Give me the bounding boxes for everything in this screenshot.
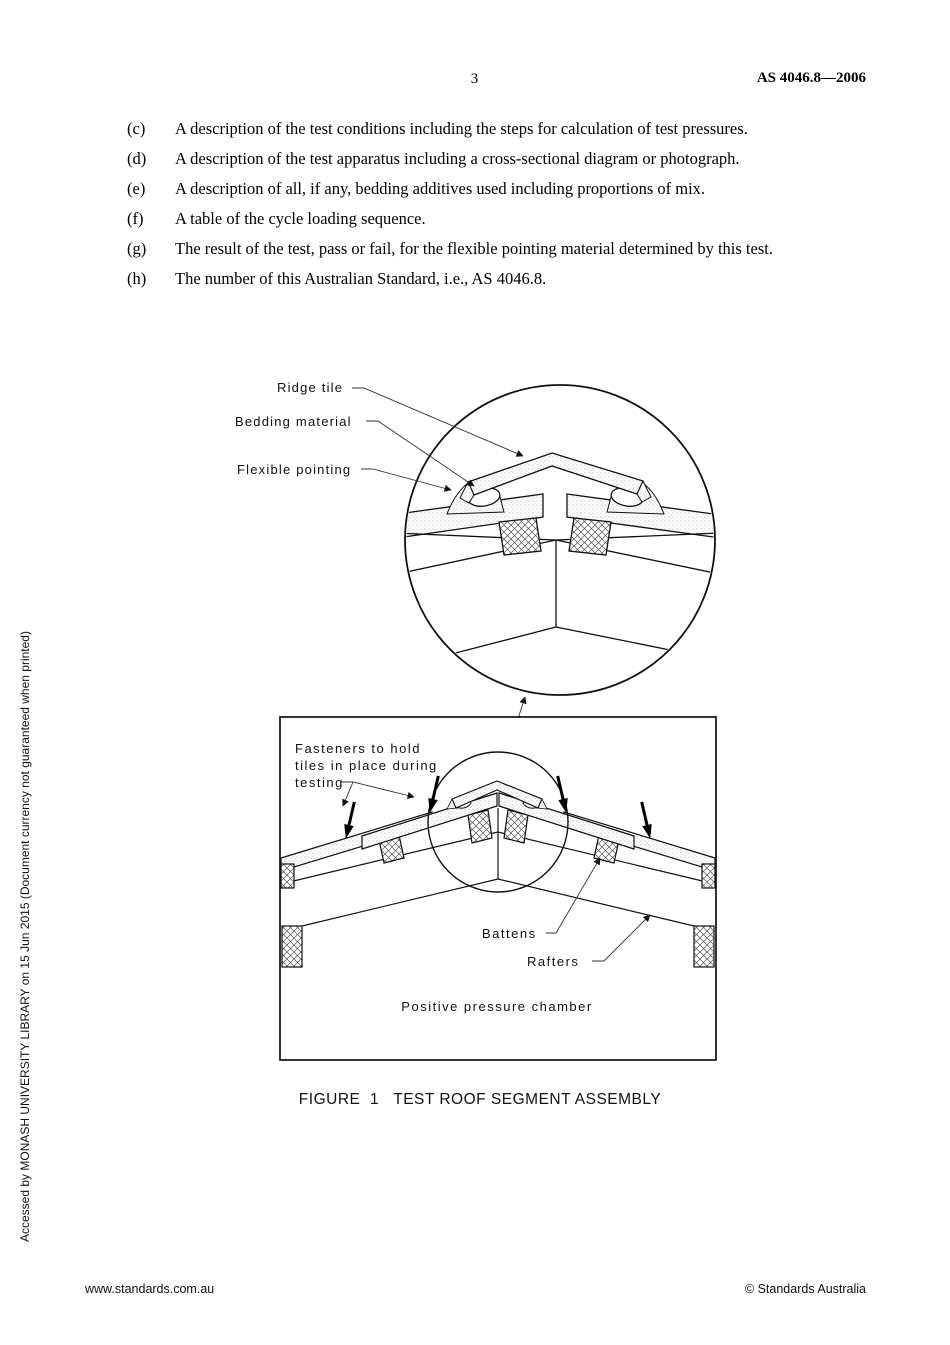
ridge-detail-view — [390, 385, 728, 695]
list-item: (d) A description of the test apparatus … — [127, 148, 822, 170]
figure-diagram: Ridge tile Bedding material Flexible poi… — [180, 370, 740, 1070]
item-text: A table of the cycle loading sequence. — [175, 209, 426, 228]
item-marker: (e) — [127, 178, 145, 200]
item-marker: (d) — [127, 148, 146, 170]
item-text: The result of the test, pass or fail, fo… — [175, 239, 773, 258]
batten-left-inner — [468, 810, 492, 843]
figure-caption: FIGURE 1 TEST ROOF SEGMENT ASSEMBLY — [180, 1091, 780, 1109]
rafters-label: Rafters — [527, 954, 579, 969]
item-text: The number of this Australian Standard, … — [175, 269, 546, 288]
item-text: A description of all, if any, bedding ad… — [175, 179, 705, 198]
fasteners-label-line1: Fasteners to hold — [295, 741, 421, 756]
list-item: (h) The number of this Australian Standa… — [127, 268, 822, 290]
batten-detail-right — [569, 518, 611, 555]
chamber-label: Positive pressure chamber — [401, 999, 592, 1014]
fasteners-label-line3: testing — [295, 775, 344, 790]
list-item: (c) A description of the test conditions… — [127, 118, 822, 140]
standard-code: AS 4046.8—2006 — [480, 70, 866, 87]
batten-right-inner — [504, 810, 528, 843]
ridge-tile-label: Ridge tile — [277, 380, 343, 395]
document-page: 3 AS 4046.8—2006 (c) A description of th… — [0, 0, 950, 1345]
batten-detail-left — [499, 518, 541, 555]
battens-label: Battens — [482, 926, 537, 941]
item-marker: (h) — [127, 268, 146, 290]
list-item: (g) The result of the test, pass or fail… — [127, 238, 822, 260]
item-marker: (g) — [127, 238, 146, 260]
edge-block-left — [281, 864, 294, 888]
flexible-pointing-label: Flexible pointing — [237, 462, 351, 477]
item-marker: (c) — [127, 118, 145, 140]
item-marker: (f) — [127, 208, 143, 230]
item-text: A description of the test apparatus incl… — [175, 149, 740, 168]
list-item: (e) A description of all, if any, beddin… — [127, 178, 822, 200]
footer-website: www.standards.com.au — [85, 1282, 214, 1296]
support-block-left — [282, 926, 302, 967]
fasteners-label-line2: tiles in place during — [295, 758, 438, 773]
edge-block-right — [702, 864, 715, 888]
list-item: (f) A table of the cycle loading sequenc… — [127, 208, 822, 230]
bedding-material-label: Bedding material — [235, 414, 352, 429]
support-block-right — [694, 926, 714, 967]
assembly-view: Fasteners to hold tiles in place during … — [280, 717, 716, 1060]
library-access-note: Accessed by MONASH UNIVERSITY LIBRARY on… — [18, 631, 32, 1242]
clause-list: (c) A description of the test conditions… — [127, 118, 822, 298]
item-text: A description of the test conditions inc… — [175, 119, 748, 138]
footer-copyright: © Standards Australia — [480, 1282, 866, 1296]
